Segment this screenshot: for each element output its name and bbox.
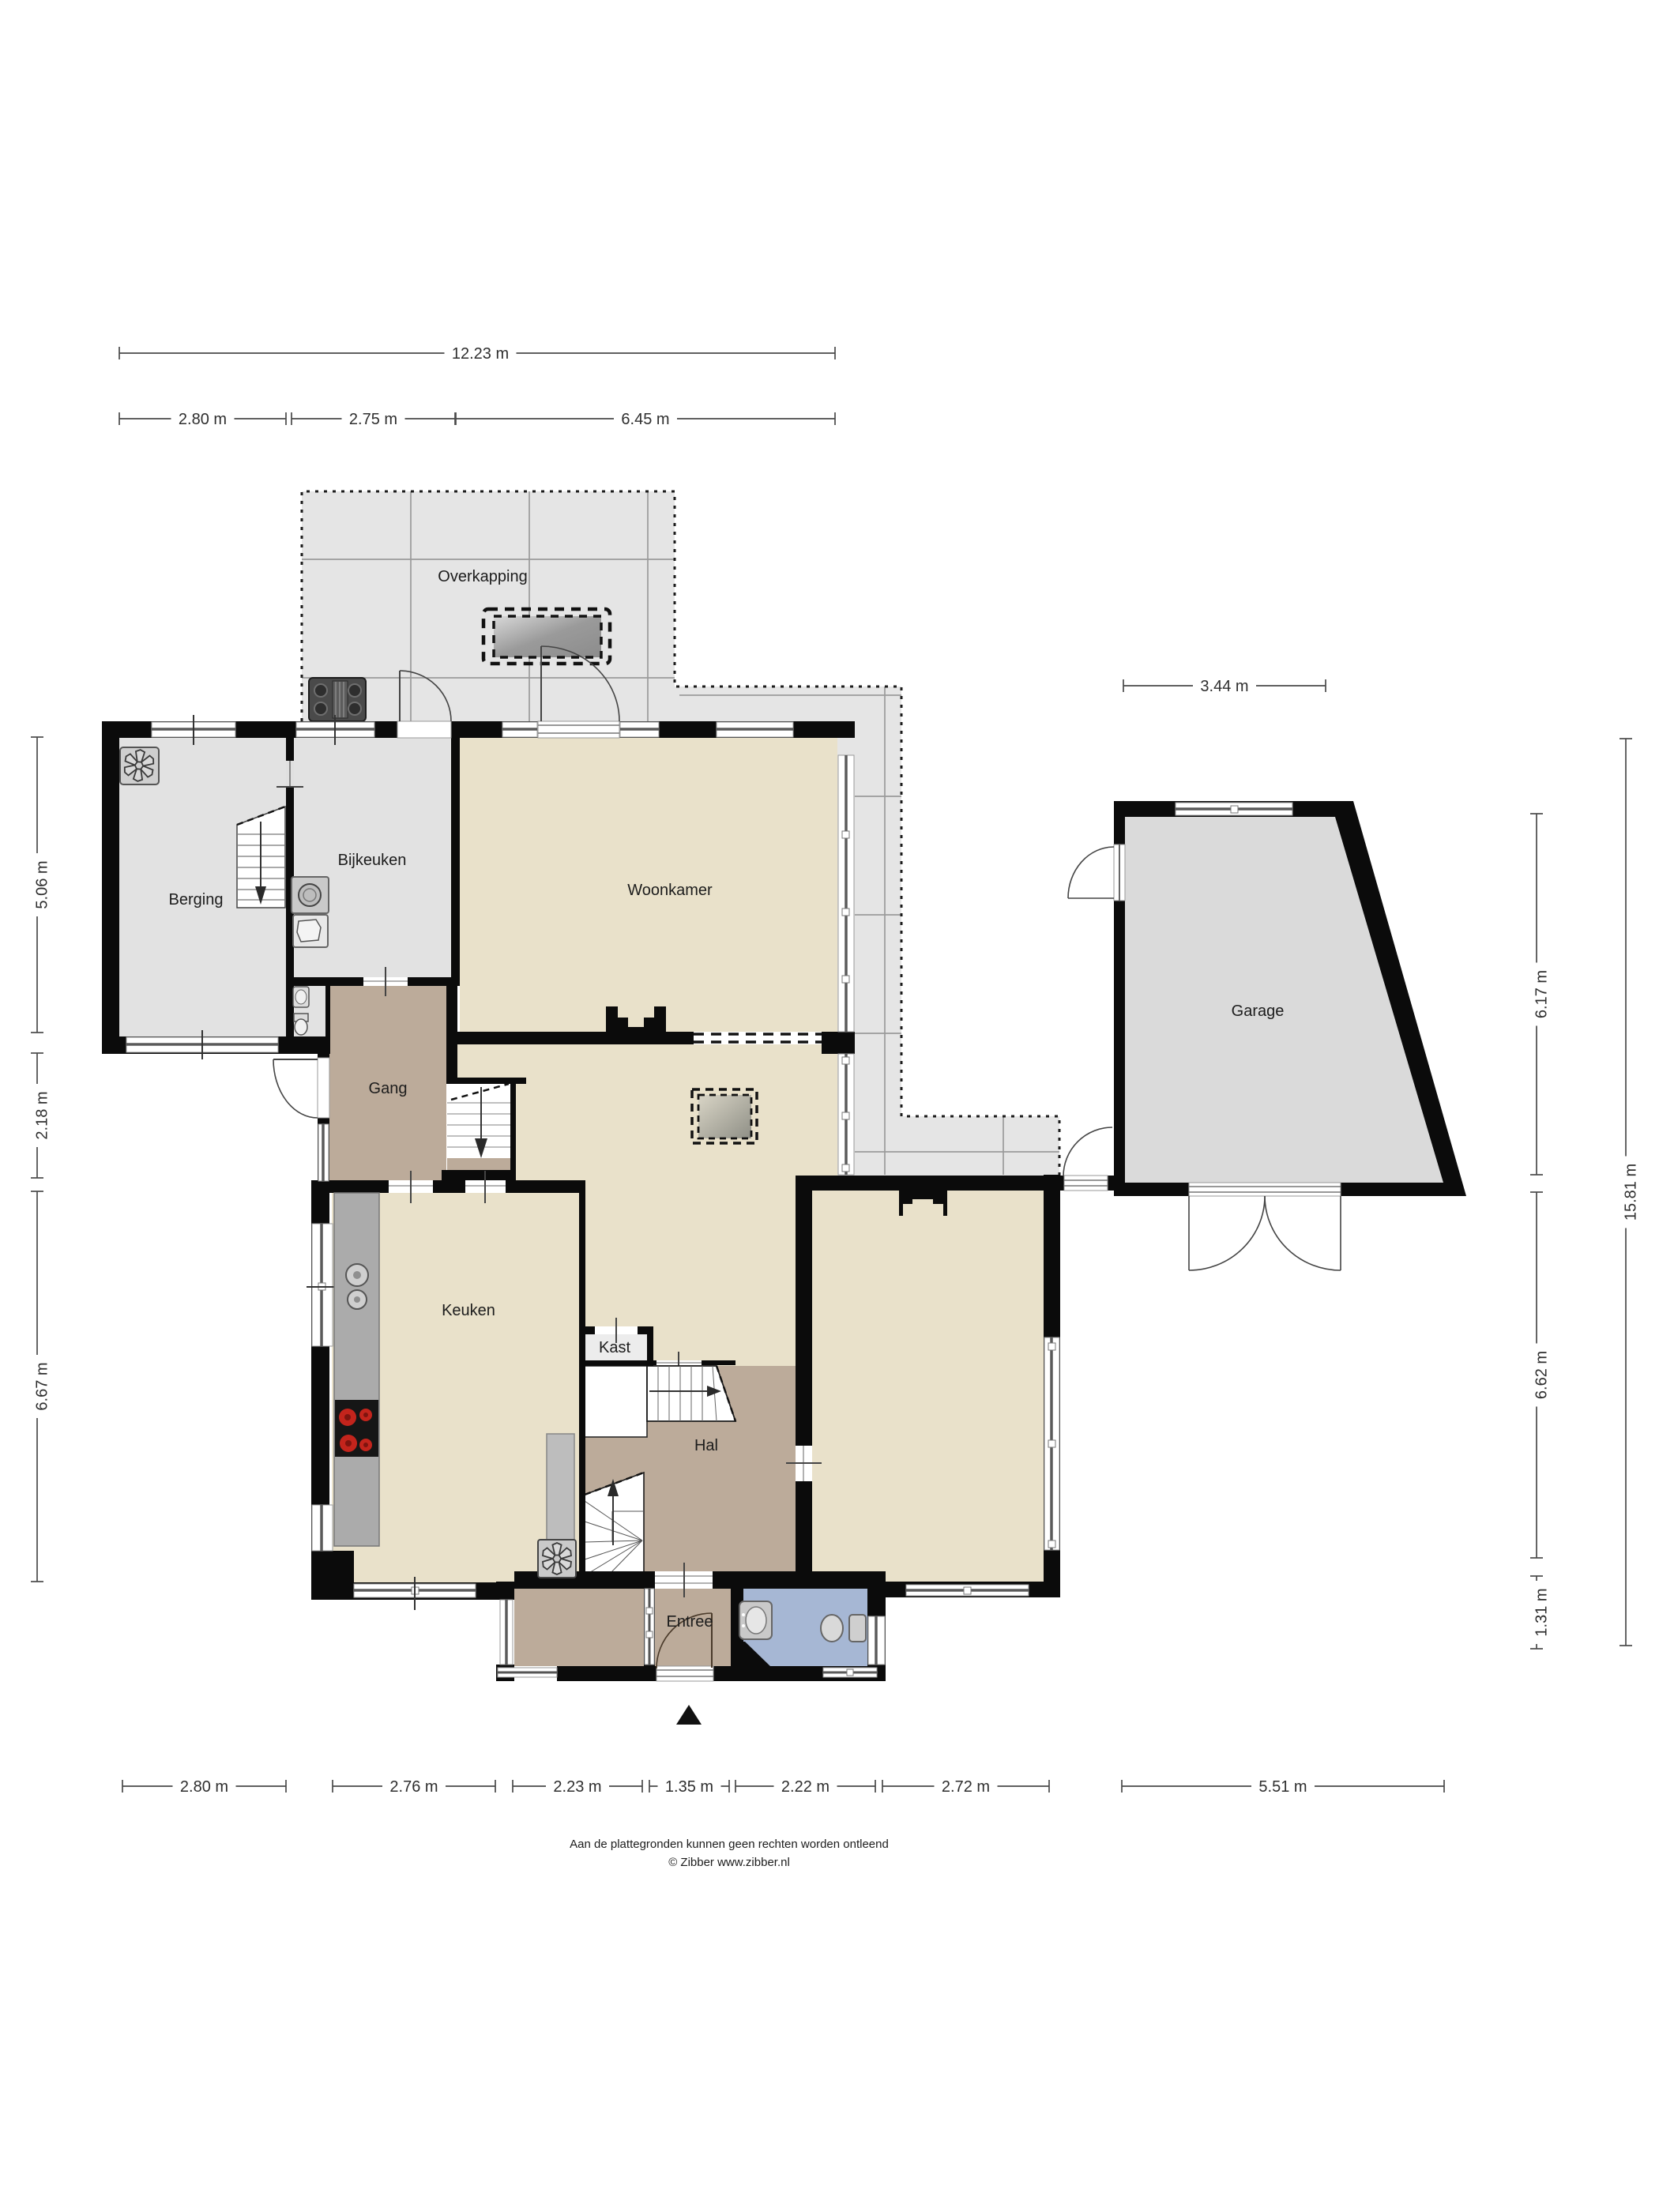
svg-text:15.81 m: 15.81 m xyxy=(1622,1164,1639,1221)
svg-text:© Zibber www.zibber.nl: © Zibber www.zibber.nl xyxy=(668,1856,790,1869)
svg-text:Aan de plattegronden kunnen ge: Aan de plattegronden kunnen geen rechten… xyxy=(570,1838,889,1851)
svg-text:Entree: Entree xyxy=(667,1613,713,1631)
svg-text:2.23 m: 2.23 m xyxy=(553,1778,601,1796)
svg-text:2.18 m: 2.18 m xyxy=(33,1091,51,1139)
svg-text:1.35 m: 1.35 m xyxy=(665,1778,713,1796)
svg-text:Overkapping: Overkapping xyxy=(438,568,527,585)
svg-text:12.23 m: 12.23 m xyxy=(452,345,509,363)
svg-text:2.80 m: 2.80 m xyxy=(179,411,227,428)
svg-text:2.80 m: 2.80 m xyxy=(180,1778,228,1796)
svg-text:1.31 m: 1.31 m xyxy=(1533,1588,1550,1636)
svg-text:Garage: Garage xyxy=(1232,1003,1285,1020)
svg-text:2.22 m: 2.22 m xyxy=(781,1778,829,1796)
svg-text:Hal: Hal xyxy=(694,1437,718,1454)
svg-text:2.76 m: 2.76 m xyxy=(389,1778,438,1796)
svg-text:Berging: Berging xyxy=(169,891,224,908)
svg-text:5.06 m: 5.06 m xyxy=(33,860,51,908)
svg-text:2.72 m: 2.72 m xyxy=(942,1778,990,1796)
svg-text:6.62 m: 6.62 m xyxy=(1533,1351,1550,1399)
svg-text:Woonkamer: Woonkamer xyxy=(627,882,713,899)
svg-text:Keuken: Keuken xyxy=(442,1302,495,1319)
svg-text:3.44 m: 3.44 m xyxy=(1200,678,1248,695)
svg-text:Gang: Gang xyxy=(369,1080,408,1097)
svg-text:5.51 m: 5.51 m xyxy=(1258,1778,1307,1796)
svg-text:6.17 m: 6.17 m xyxy=(1533,970,1550,1018)
svg-text:6.67 m: 6.67 m xyxy=(33,1362,51,1410)
svg-text:2.75 m: 2.75 m xyxy=(349,411,397,428)
svg-text:Bijkeuken: Bijkeuken xyxy=(338,852,407,869)
svg-text:6.45 m: 6.45 m xyxy=(621,411,669,428)
svg-text:Kast: Kast xyxy=(599,1339,630,1356)
